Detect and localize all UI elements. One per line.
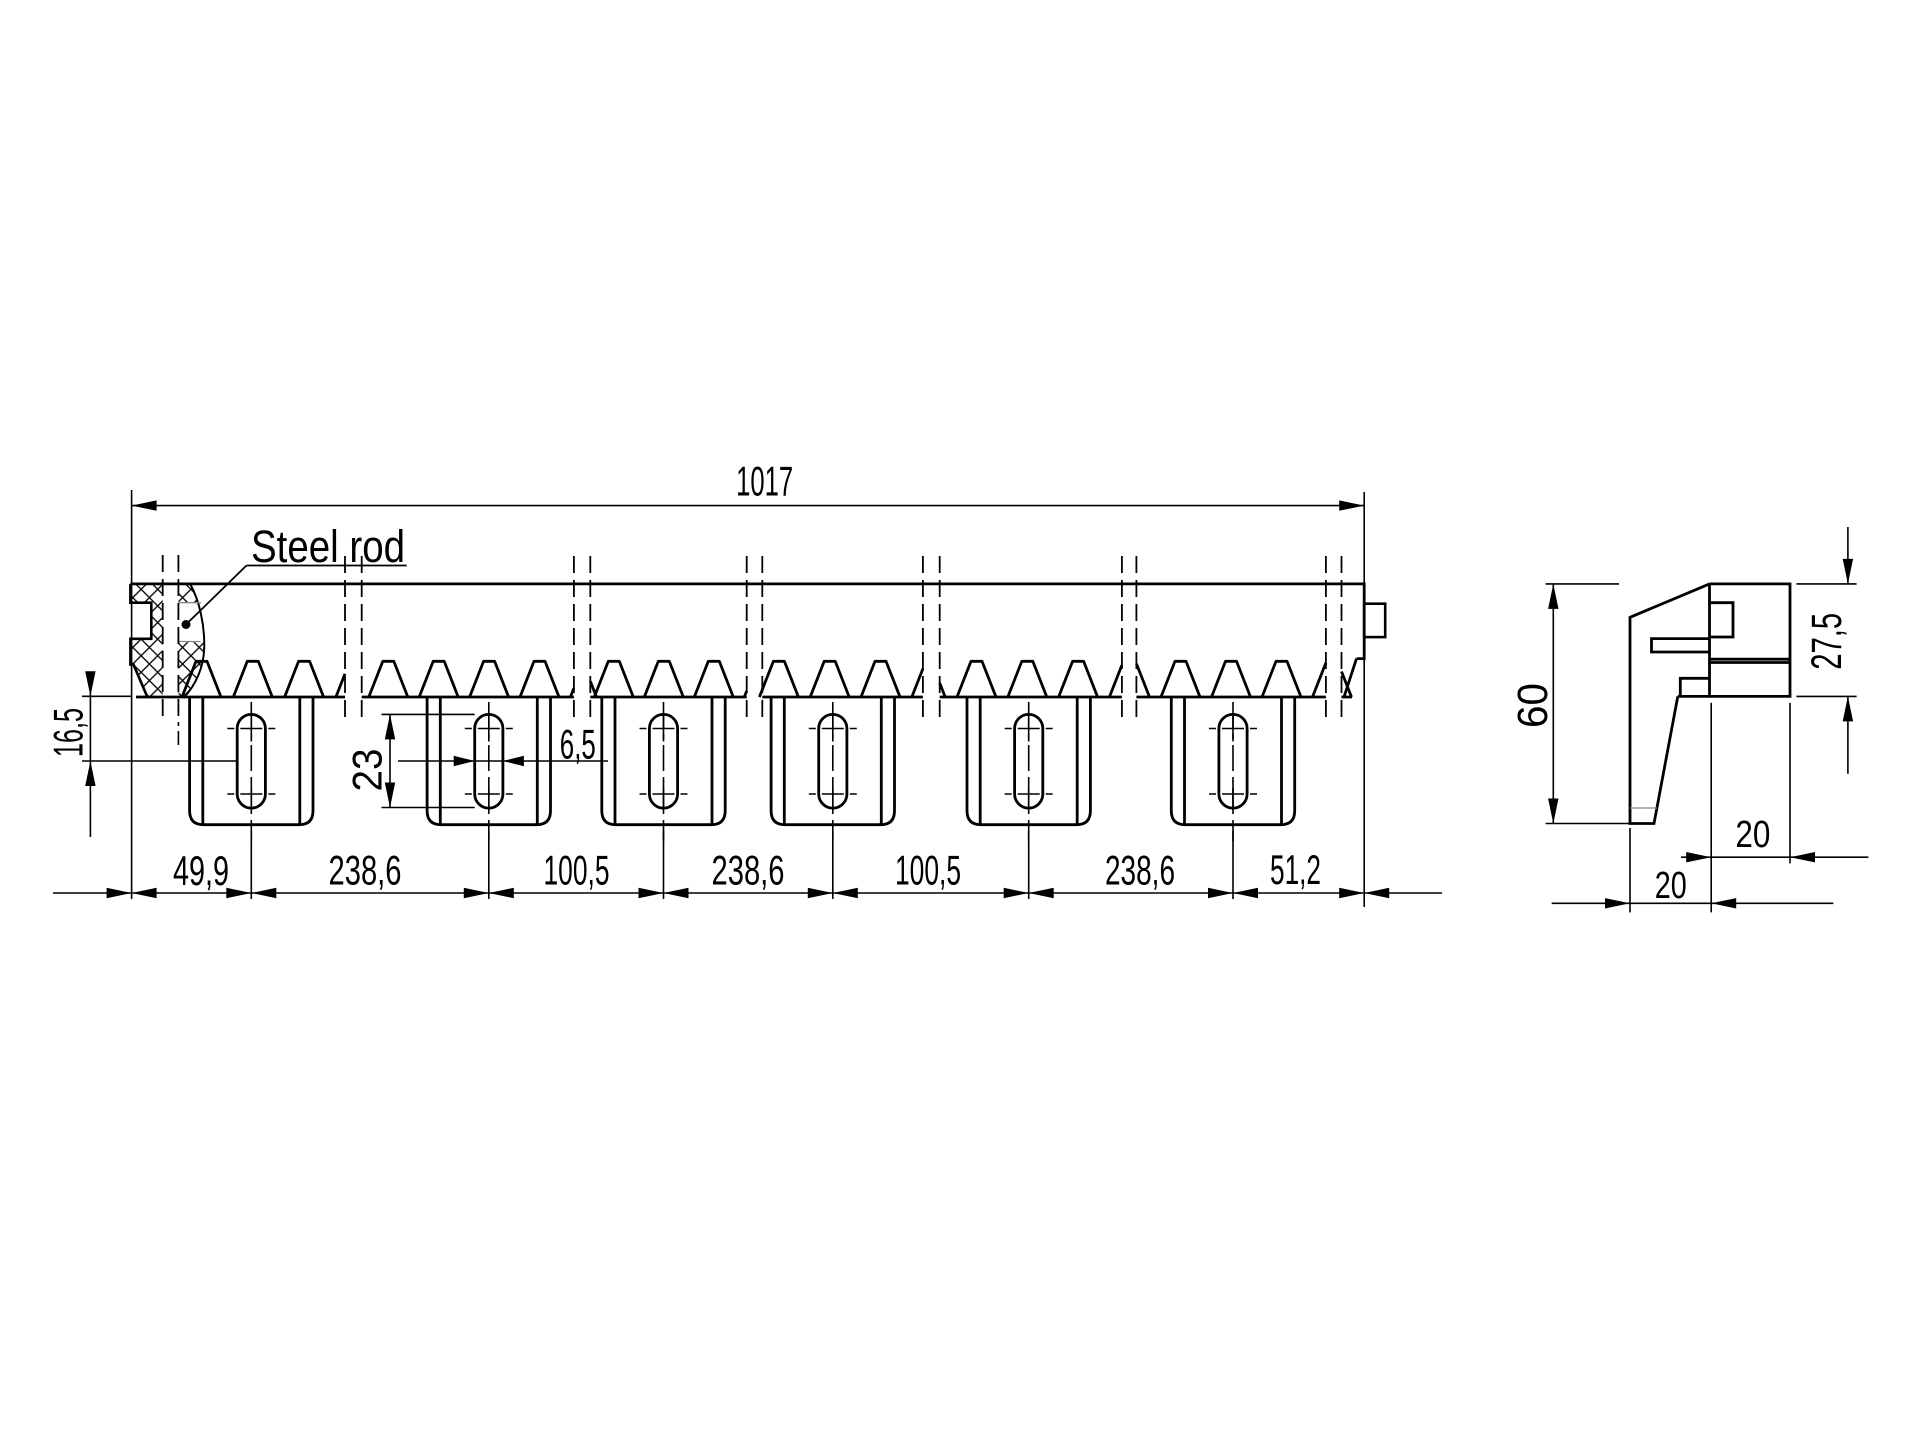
svg-text:Steel rod: Steel rod bbox=[251, 521, 405, 572]
svg-text:27,5: 27,5 bbox=[1803, 613, 1851, 670]
svg-text:60: 60 bbox=[1509, 683, 1557, 728]
svg-text:100,5: 100,5 bbox=[544, 847, 610, 894]
svg-text:100,5: 100,5 bbox=[895, 847, 961, 894]
svg-text:51,2: 51,2 bbox=[1270, 846, 1321, 893]
svg-text:23: 23 bbox=[343, 749, 390, 792]
svg-text:6,5: 6,5 bbox=[560, 721, 596, 768]
svg-text:20: 20 bbox=[1735, 814, 1770, 856]
svg-text:238,6: 238,6 bbox=[329, 847, 402, 894]
svg-text:238,6: 238,6 bbox=[1105, 847, 1175, 894]
svg-text:1017: 1017 bbox=[736, 458, 793, 505]
svg-text:238,6: 238,6 bbox=[712, 847, 785, 894]
svg-text:20: 20 bbox=[1655, 865, 1687, 907]
svg-text:49,9: 49,9 bbox=[173, 847, 229, 894]
svg-text:16,5: 16,5 bbox=[45, 708, 92, 757]
